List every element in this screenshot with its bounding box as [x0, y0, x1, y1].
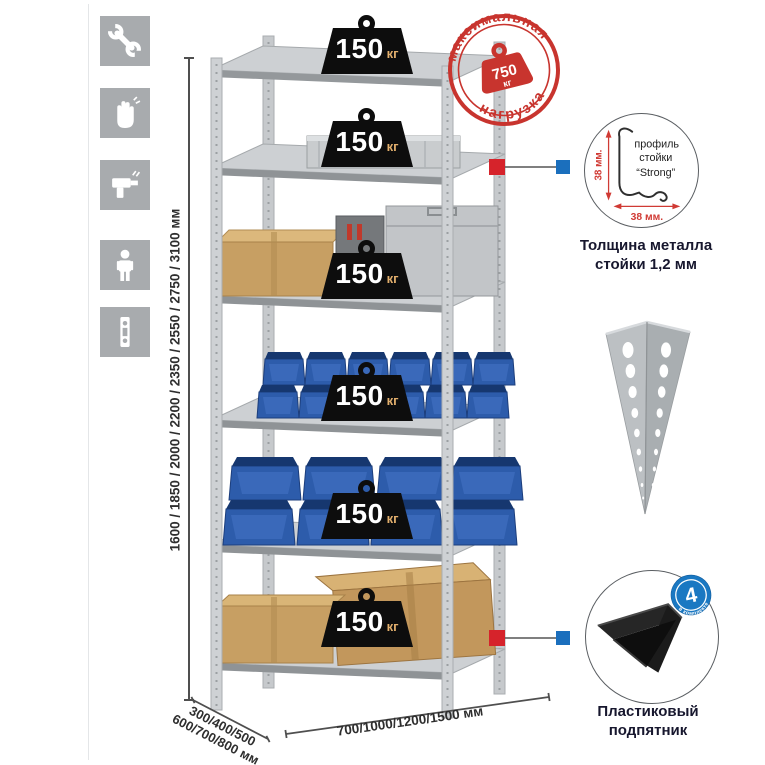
shelf-load-badge: 150кг [321, 480, 413, 540]
blue-marker-square [556, 631, 570, 645]
gloves-icon [108, 96, 142, 130]
page-edge-divider [88, 4, 89, 760]
profile-caption-line1: Толщина металла [563, 236, 729, 255]
max-load-stamp: максимальная нагрузка 750 кг [446, 12, 562, 128]
load-unit: кг [387, 619, 399, 634]
icon-tile-rack-profile [100, 307, 150, 357]
profile-label-line1: профиль [634, 138, 679, 150]
load-unit: кг [387, 511, 399, 526]
load-unit: кг [387, 393, 399, 408]
rack-profile-icon [108, 315, 142, 349]
shelf-load-badge: 150кг [321, 240, 413, 300]
load-unit: кг [387, 139, 399, 154]
stamp-weight-icon: 750 кг [472, 39, 534, 95]
load-unit: кг [387, 271, 399, 286]
profile-caption: Толщина металла стойки 1,2 мм [563, 236, 729, 274]
drill-icon [108, 168, 142, 202]
load-unit: кг [387, 46, 399, 61]
icon-tile-person [100, 240, 150, 290]
shelf-load-badge: 150кг [321, 108, 413, 168]
foot-caption-line2: подпятник [570, 721, 726, 740]
foot-caption-line1: Пластиковый [570, 702, 726, 721]
profile-label-line3: “Strong” [636, 167, 675, 179]
horizontal-dim-arrow [613, 203, 680, 209]
product-infographic: 150кг 150кг 150кг 150кг 150кг 150кг [0, 0, 765, 765]
icon-tile-drill [100, 160, 150, 210]
shelf-load-badge: 150кг [321, 588, 413, 648]
foot-caption: Пластиковый подпятник [570, 702, 726, 740]
load-value: 150 [335, 35, 383, 63]
blue-marker-square [556, 160, 570, 174]
profile-dim-horizontal: 38 мм. [631, 212, 664, 223]
shelf-load-badge: 150кг [321, 362, 413, 422]
load-value: 150 [335, 608, 383, 636]
wrench-icon [108, 24, 142, 58]
height-dimension-label: 1600 / 1850 / 2000 / 2200 / 2350 / 2550 … [168, 209, 183, 552]
profile-label-line2: стойки [639, 152, 672, 164]
profile-label: профиль стойки “Strong” [634, 138, 679, 178]
person-icon [108, 248, 142, 282]
icon-tile-assembly [100, 16, 150, 66]
vertical-dim-arrow [606, 130, 612, 201]
height-dimension-line [184, 58, 194, 700]
load-value: 150 [335, 128, 383, 156]
profile-dim-vertical: 38 мм. [594, 149, 605, 180]
shelf-load-badge: 150кг [321, 15, 413, 75]
load-value: 150 [335, 260, 383, 288]
profile-caption-line2: стойки 1,2 мм [563, 255, 729, 274]
corner-post-image [598, 308, 698, 523]
load-value: 150 [335, 382, 383, 410]
kit-count-badge: 4 в комплекте [670, 574, 712, 616]
load-value: 150 [335, 500, 383, 528]
profile-callout: 38 мм. 38 мм. профиль стойки “Strong” [584, 113, 699, 228]
icon-tile-gloves [100, 88, 150, 138]
